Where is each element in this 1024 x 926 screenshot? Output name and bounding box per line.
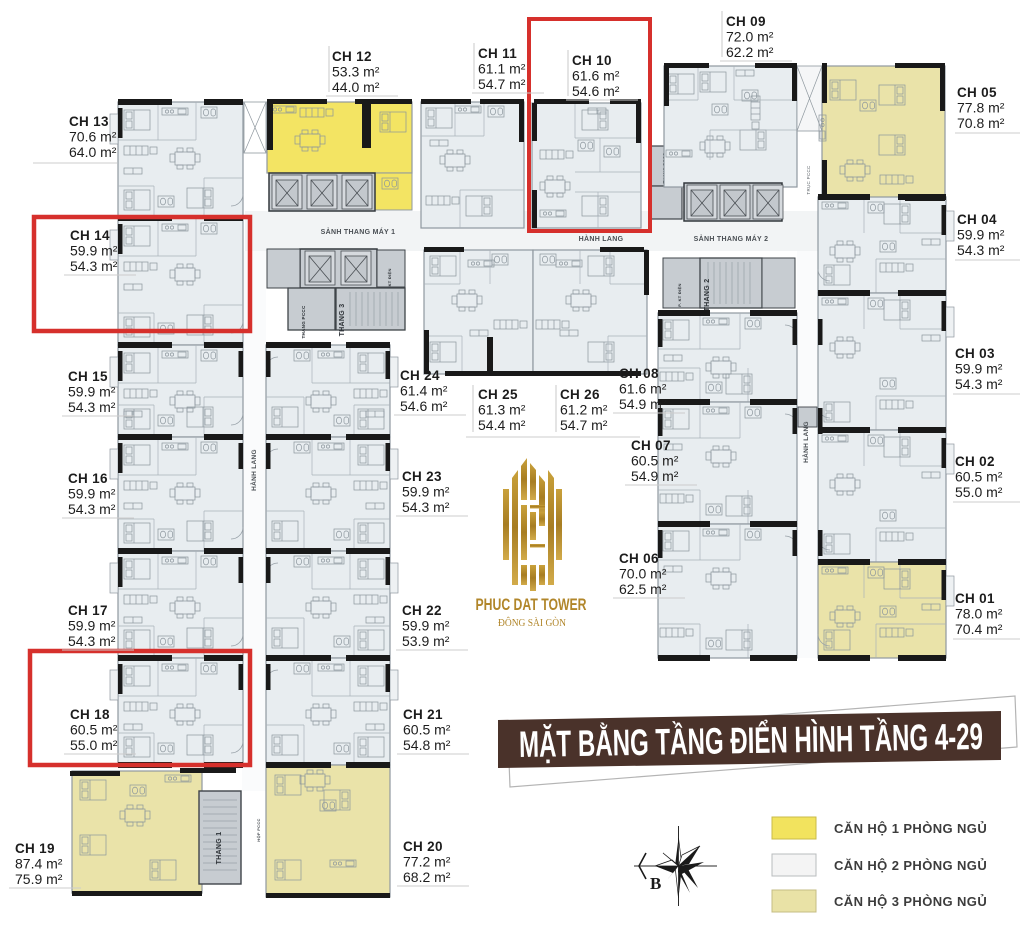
svg-text:CH 07: CH 07	[631, 438, 671, 453]
svg-text:CH 26: CH 26	[560, 387, 600, 402]
svg-text:HÀNH LANG: HÀNH LANG	[249, 449, 258, 491]
svg-text:54.3 m²: 54.3 m²	[68, 633, 116, 649]
svg-text:61.3 m²: 61.3 m²	[478, 402, 526, 418]
svg-text:68.2 m²: 68.2 m²	[403, 869, 451, 885]
svg-text:54.8 m²: 54.8 m²	[403, 737, 451, 753]
svg-text:61.6 m²: 61.6 m²	[619, 381, 667, 397]
svg-text:70.4 m²: 70.4 m²	[955, 621, 1003, 637]
svg-text:55.0 m²: 55.0 m²	[70, 737, 118, 753]
svg-text:54.3 m²: 54.3 m²	[68, 399, 116, 415]
svg-text:54.3 m²: 54.3 m²	[70, 258, 118, 274]
svg-text:CH 25: CH 25	[478, 387, 518, 402]
svg-text:HÀNH LANG: HÀNH LANG	[801, 421, 810, 463]
svg-text:70.8 m²: 70.8 m²	[957, 115, 1005, 131]
svg-text:77.8 m²: 77.8 m²	[957, 100, 1005, 116]
svg-text:54.3 m²: 54.3 m²	[402, 499, 450, 515]
svg-text:HỘP PCCC: HỘP PCCC	[256, 818, 261, 841]
svg-text:THANG PCCC: THANG PCCC	[301, 305, 306, 338]
svg-text:72.0 m²: 72.0 m²	[726, 29, 774, 45]
svg-text:70.0 m²: 70.0 m²	[619, 566, 667, 582]
svg-text:CH 17: CH 17	[68, 603, 108, 618]
svg-text:44.0 m²: 44.0 m²	[332, 79, 380, 95]
svg-text:CH 22: CH 22	[402, 603, 442, 618]
svg-text:54.6 m²: 54.6 m²	[572, 83, 620, 99]
svg-text:CH 05: CH 05	[957, 85, 997, 100]
svg-text:CH 19: CH 19	[15, 841, 55, 856]
svg-text:HÀNH LANG: HÀNH LANG	[579, 234, 624, 243]
svg-text:87.4 m²: 87.4 m²	[15, 856, 63, 872]
svg-text:62.2 m²: 62.2 m²	[726, 44, 774, 60]
svg-text:54.3 m²: 54.3 m²	[68, 501, 116, 517]
svg-text:55.0 m²: 55.0 m²	[955, 484, 1003, 500]
svg-text:THANG 3: THANG 3	[339, 304, 346, 337]
svg-text:CH 13: CH 13	[69, 114, 109, 129]
svg-text:59.9 m²: 59.9 m²	[402, 484, 450, 500]
svg-text:59.9 m²: 59.9 m²	[68, 486, 116, 502]
svg-text:59.9 m²: 59.9 m²	[68, 384, 116, 400]
svg-text:61.1 m²: 61.1 m²	[478, 61, 526, 77]
svg-text:THANG 1: THANG 1	[216, 832, 223, 865]
svg-text:61.4 m²: 61.4 m²	[400, 383, 448, 399]
svg-text:THANG 2: THANG 2	[704, 279, 711, 312]
svg-text:CH 18: CH 18	[70, 707, 110, 722]
svg-text:62.5 m²: 62.5 m²	[619, 581, 667, 597]
svg-text:59.9 m²: 59.9 m²	[955, 361, 1003, 377]
svg-text:54.7 m²: 54.7 m²	[560, 417, 608, 433]
svg-text:CH 03: CH 03	[955, 346, 995, 361]
svg-text:CH 16: CH 16	[68, 471, 108, 486]
svg-text:60.5 m²: 60.5 m²	[955, 469, 1003, 485]
svg-text:CH 09: CH 09	[726, 14, 766, 29]
svg-text:ĐÔNG SÀI GÒN: ĐÔNG SÀI GÒN	[498, 617, 566, 629]
svg-text:CĂN HỘ 3 PHÒNG NGỦ: CĂN HỘ 3 PHÒNG NGỦ	[834, 894, 987, 909]
svg-text:61.2 m²: 61.2 m²	[560, 402, 608, 418]
svg-text:CH 02: CH 02	[955, 454, 995, 469]
svg-text:MẶT BẰNG TẦNG ĐIỂN HÌNH TẦNG 4: MẶT BẰNG TẦNG ĐIỂN HÌNH TẦNG 4-29	[519, 715, 984, 765]
svg-text:CH 24: CH 24	[400, 368, 440, 383]
svg-text:PHUC DAT TOWER: PHUC DAT TOWER	[476, 596, 587, 614]
svg-text:CH 14: CH 14	[70, 228, 110, 243]
svg-text:54.4 m²: 54.4 m²	[478, 417, 526, 433]
svg-text:70.6 m²: 70.6 m²	[69, 129, 117, 145]
svg-text:B: B	[650, 874, 661, 893]
svg-text:CH 12: CH 12	[332, 49, 372, 64]
svg-text:SẢNH THANG MÁY 2: SẢNH THANG MÁY 2	[694, 234, 769, 243]
svg-text:TRỤC PCCC: TRỤC PCCC	[806, 165, 811, 195]
svg-text:CĂN HỘ 1 PHÒNG NGỦ: CĂN HỘ 1 PHÒNG NGỦ	[834, 821, 987, 836]
svg-text:77.2 m²: 77.2 m²	[403, 854, 451, 870]
svg-text:59.9 m²: 59.9 m²	[68, 618, 116, 634]
svg-text:59.9 m²: 59.9 m²	[70, 243, 118, 259]
svg-text:CH 08: CH 08	[619, 366, 659, 381]
svg-text:CH 10: CH 10	[572, 53, 612, 68]
svg-text:CH 06: CH 06	[619, 551, 659, 566]
svg-text:60.5 m²: 60.5 m²	[70, 722, 118, 738]
svg-text:CH 21: CH 21	[403, 707, 443, 722]
svg-text:64.0 m²: 64.0 m²	[69, 144, 117, 160]
svg-text:59.9 m²: 59.9 m²	[402, 618, 450, 634]
svg-text:54.7 m²: 54.7 m²	[478, 76, 526, 92]
svg-text:SẢNH THANG MÁY 1: SẢNH THANG MÁY 1	[321, 227, 396, 236]
svg-text:CH 04: CH 04	[957, 212, 997, 227]
svg-text:54.6 m²: 54.6 m²	[400, 398, 448, 414]
svg-text:78.0 m²: 78.0 m²	[955, 606, 1003, 622]
svg-text:CH 20: CH 20	[403, 839, 443, 854]
svg-text:CĂN HỘ 2 PHÒNG NGỦ: CĂN HỘ 2 PHÒNG NGỦ	[834, 858, 987, 873]
svg-text:CH 23: CH 23	[402, 469, 442, 484]
svg-text:59.9 m²: 59.9 m²	[957, 227, 1005, 243]
svg-text:61.6 m²: 61.6 m²	[572, 68, 620, 84]
svg-text:60.5 m²: 60.5 m²	[631, 453, 679, 469]
svg-text:60.5 m²: 60.5 m²	[403, 722, 451, 738]
svg-text:CH 11: CH 11	[478, 46, 517, 61]
svg-text:54.9 m²: 54.9 m²	[631, 468, 679, 484]
svg-text:54.3 m²: 54.3 m²	[955, 376, 1003, 392]
svg-text:53.9 m²: 53.9 m²	[402, 633, 450, 649]
svg-text:54.3 m²: 54.3 m²	[957, 242, 1005, 258]
svg-text:54.9 m²: 54.9 m²	[619, 396, 667, 412]
svg-text:CH 15: CH 15	[68, 369, 108, 384]
svg-text:75.9 m²: 75.9 m²	[15, 871, 63, 887]
svg-text:P. KT ĐIỆN: P. KT ĐIỆN	[677, 283, 682, 306]
svg-text:53.3 m²: 53.3 m²	[332, 64, 380, 80]
svg-text:CH 01: CH 01	[955, 591, 995, 606]
